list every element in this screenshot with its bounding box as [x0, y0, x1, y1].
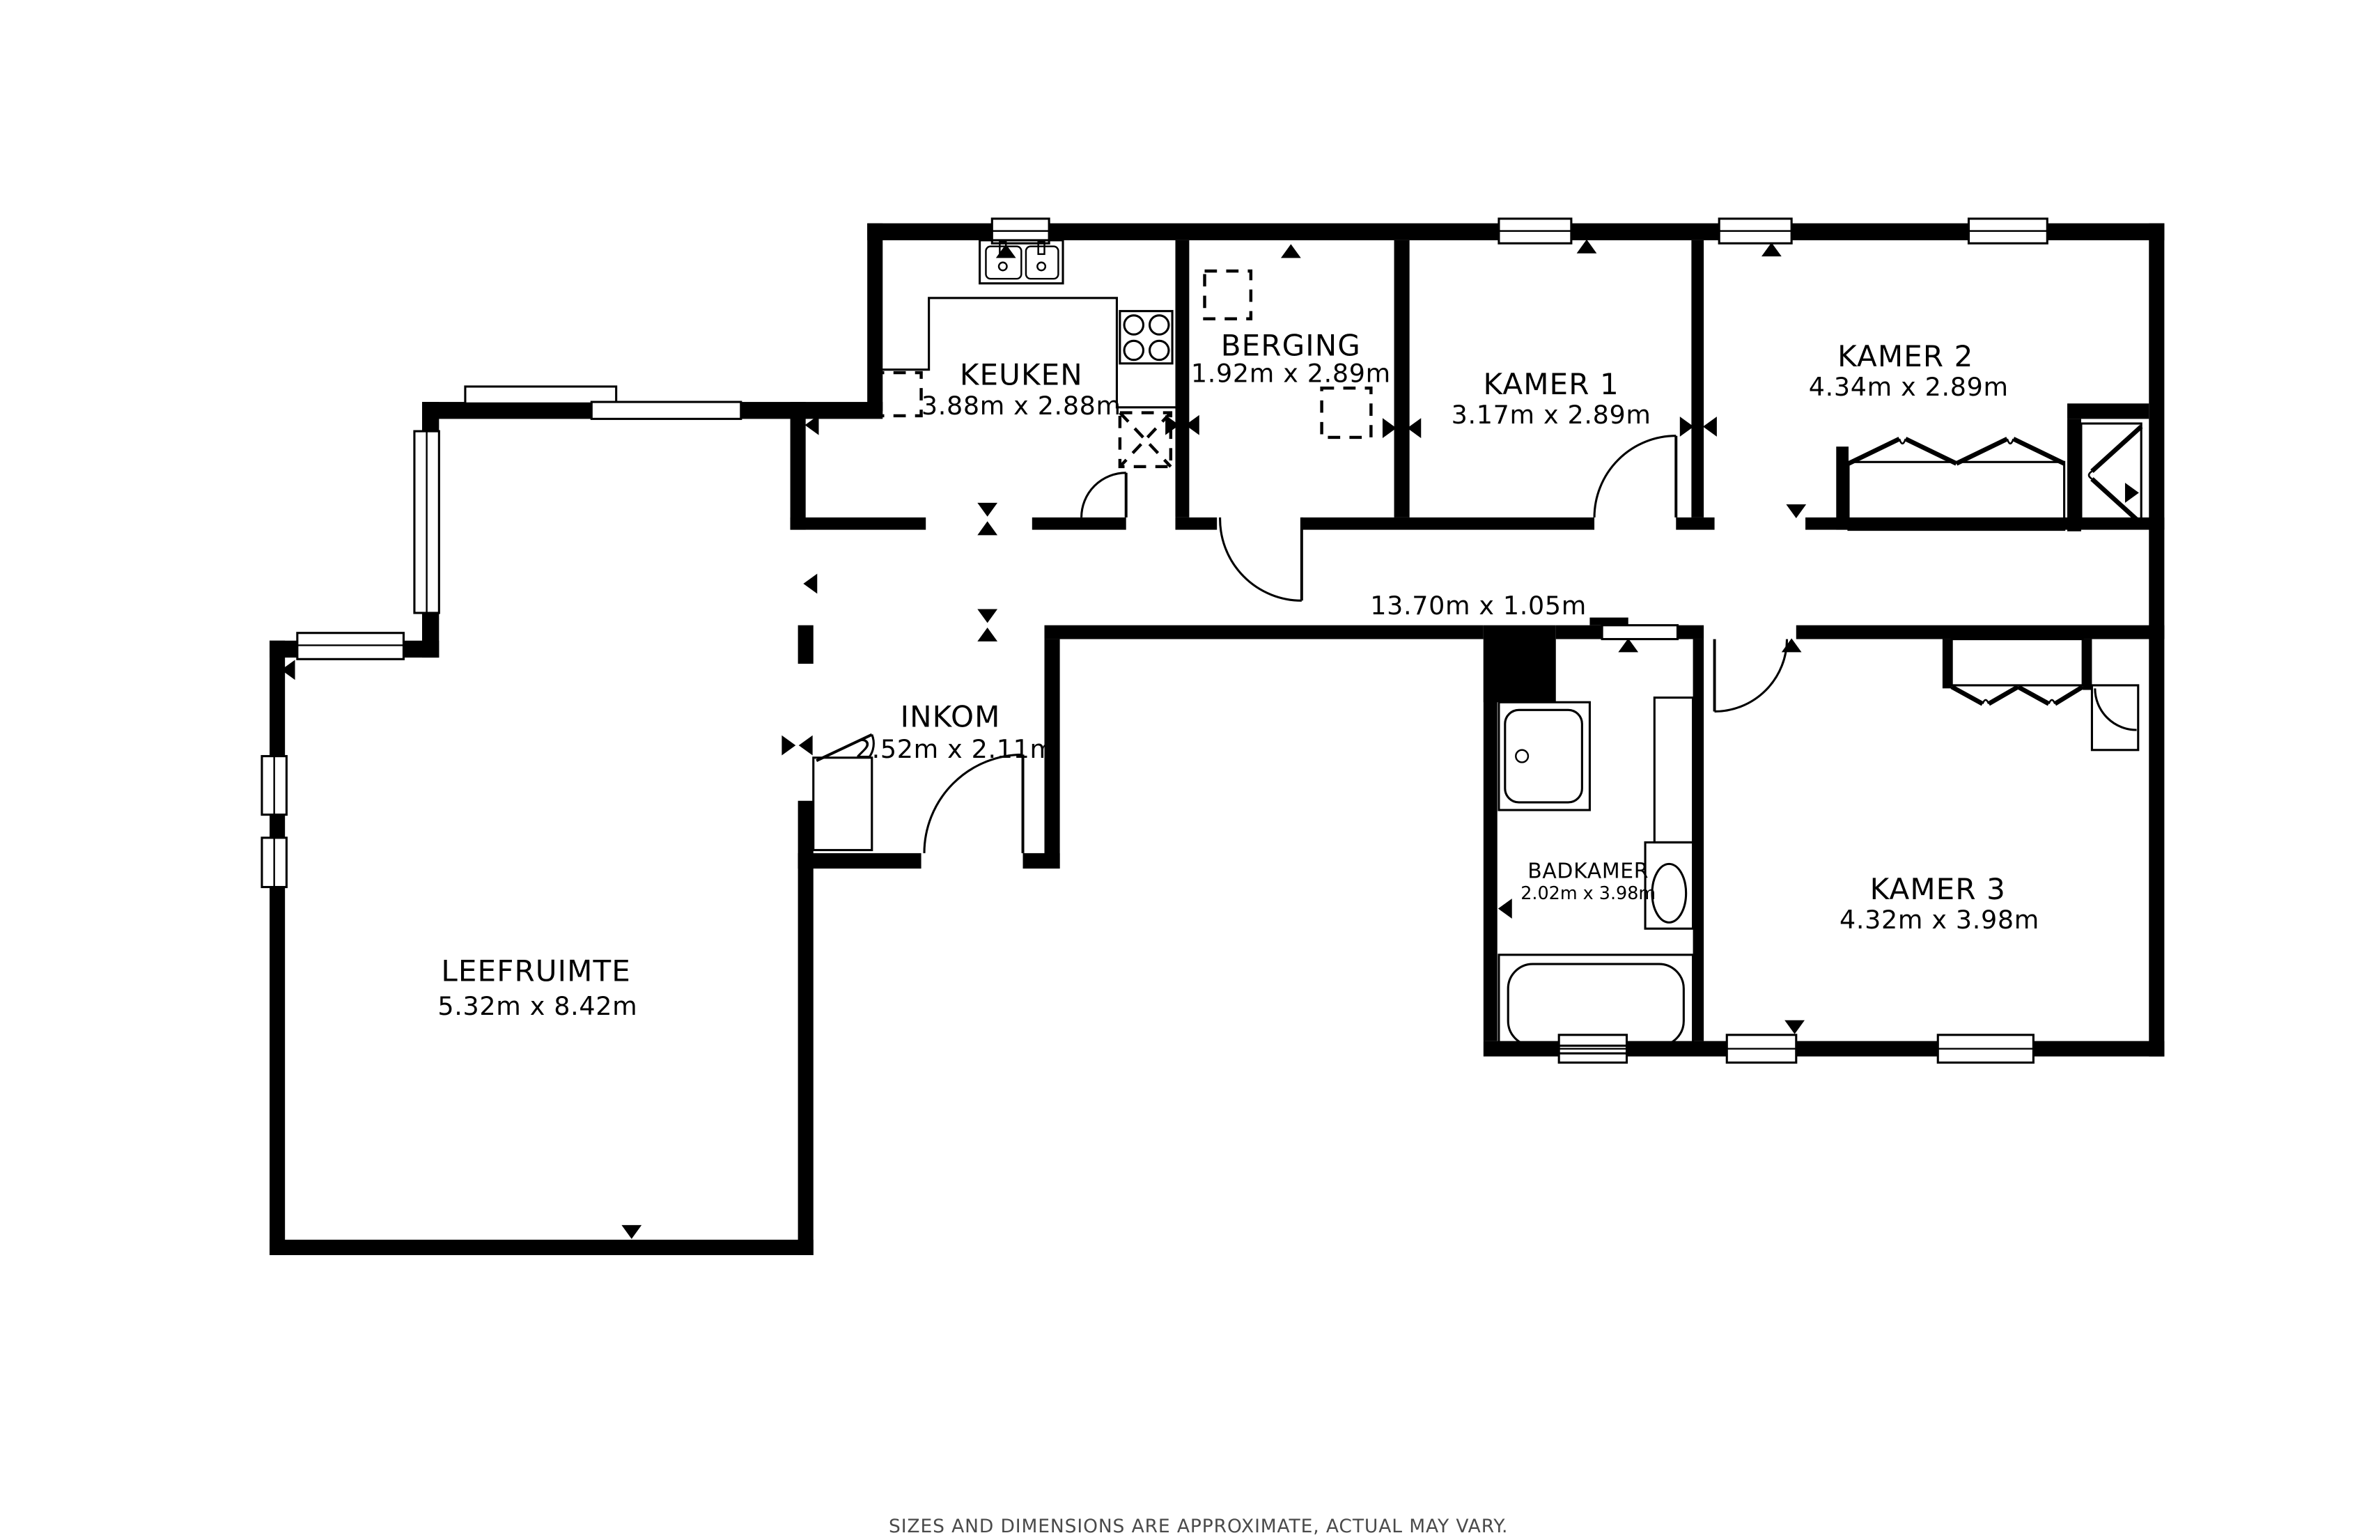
marker-up-icon	[977, 628, 997, 641]
room-label-keuken: KEUKEN	[960, 358, 1083, 392]
door-berging	[1220, 518, 1302, 600]
closet-kamer3-niche	[2092, 685, 2138, 750]
marker-up-icon	[1782, 638, 1802, 652]
room-dims-kamer1: 3.17m x 2.89m	[1452, 400, 1651, 430]
wardrobe-kamer2-row	[1836, 439, 2064, 529]
marker-right-icon	[2125, 483, 2139, 503]
floor-plan-svg: KEUKEN 3.88m x 2.88m BERGING 1.92m x 2.8…	[0, 0, 2380, 1540]
corridor-underline	[1589, 618, 1628, 625]
marker-up-icon	[1281, 244, 1301, 258]
disclaimer-text: SIZES AND DIMENSIONS ARE APPROXIMATE, AC…	[889, 1516, 1508, 1537]
room-dims-kamer2: 4.34m x 2.89m	[1809, 372, 2009, 402]
wardrobe-kamer2-niche	[2081, 423, 2141, 527]
room-dims-badkamer: 2.02m x 3.98m	[1520, 882, 1656, 903]
windows	[262, 219, 2047, 1063]
room-label-kamer2: KAMER 2	[1837, 339, 1973, 373]
room-label-leefruimte: LEEFRUIMTE	[441, 954, 630, 988]
marker-down-icon	[977, 503, 997, 517]
marker-down-icon	[1784, 1020, 1805, 1034]
duct	[1654, 698, 1693, 843]
room-label-inkom: INKOM	[901, 700, 1001, 734]
appliance-dashed-berging-1	[1205, 271, 1251, 319]
window-leefruimte-step	[297, 633, 404, 660]
room-label-kamer1: KAMER 1	[1483, 367, 1619, 401]
window-kamer1-top	[1499, 219, 1571, 243]
door-badkamer-panel	[1602, 625, 1677, 639]
room-label-kamer3: KAMER 3	[1870, 872, 2006, 906]
marker-left-icon	[1498, 899, 1512, 919]
marker-down-icon	[1786, 504, 1806, 518]
doors	[814, 436, 1787, 853]
marker-left-icon	[803, 574, 817, 594]
window-kamer3-bottom-1	[1727, 1035, 1796, 1063]
room-dims-inkom: 2.52m x 2.11m	[855, 734, 1055, 764]
room-dims-kamer3: 4.32m x 3.98m	[1840, 905, 2039, 935]
washbasin	[1499, 702, 1589, 810]
floorplan-canvas: KEUKEN 3.88m x 2.88m BERGING 1.92m x 2.8…	[0, 0, 2380, 1540]
marker-left-icon	[799, 736, 813, 756]
marker-up-icon	[1761, 242, 1782, 256]
room-labels: KEUKEN 3.88m x 2.88m BERGING 1.92m x 2.8…	[437, 329, 2039, 1021]
window-extension-left	[414, 431, 439, 613]
window-kamer2-top-2	[1968, 219, 2047, 243]
marker-up-icon	[1577, 240, 1597, 254]
wardrobes	[1836, 423, 2141, 750]
wardrobe-kamer3-row	[1952, 639, 2083, 704]
door-kamer3	[1715, 639, 1787, 712]
room-label-badkamer: BADKAMER	[1527, 859, 1649, 883]
room-dims-leefruimte: 5.32m x 8.42m	[437, 991, 637, 1021]
appliance-dashed-berging-2	[1322, 388, 1371, 437]
window-badkamer-bottom	[1559, 1035, 1626, 1063]
double-sink	[980, 240, 1063, 283]
door-entry-inkom	[924, 754, 1023, 853]
window-leefruimte-left-1	[262, 756, 286, 815]
marker-down-icon	[977, 609, 997, 623]
corridor-dims: 13.70m x 1.05m	[1370, 591, 1587, 621]
marker-right-icon	[781, 736, 795, 756]
marker-left-icon	[1703, 417, 1717, 437]
door-keuken	[1082, 473, 1126, 518]
room-dims-keuken: 3.88m x 2.88m	[921, 391, 1121, 421]
window-kamer3-bottom-2	[1938, 1035, 2033, 1063]
marker-up-icon	[977, 521, 997, 535]
cooktop	[1120, 311, 1172, 364]
appliance-dashed-x	[1120, 413, 1171, 467]
marker-down-icon	[621, 1225, 641, 1239]
window-leefruimte-left-2	[262, 838, 286, 887]
door-kamer1	[1594, 436, 1676, 518]
window-kamer2-top-1	[1719, 219, 1791, 243]
room-dims-berging: 1.92m x 2.89m	[1191, 358, 1391, 388]
marker-up-icon	[1618, 638, 1638, 652]
